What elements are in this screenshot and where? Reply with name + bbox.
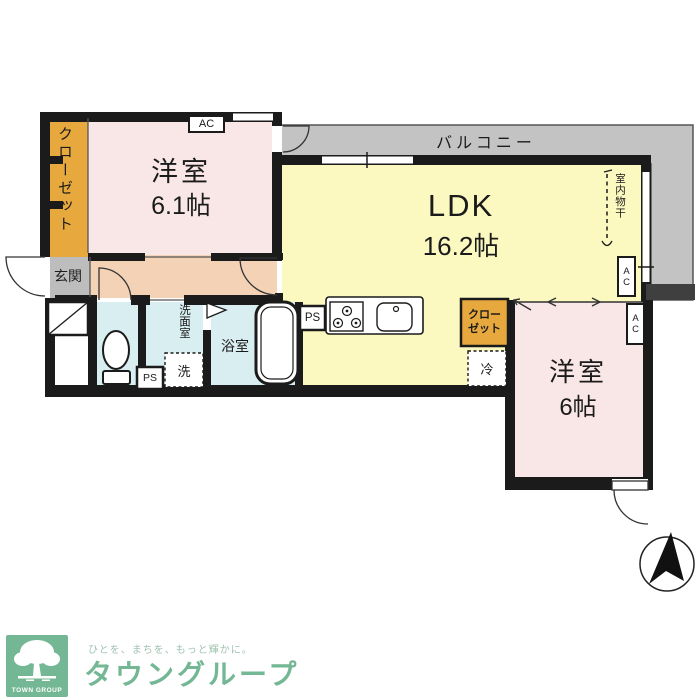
bedroom1-size: 6.1帖 — [100, 186, 262, 222]
washer-label: 洗 — [165, 353, 203, 387]
closet-bedroom2-label: クロー ゼット — [461, 299, 508, 346]
ac-label-bedroom1: AC — [189, 116, 224, 132]
ac-label-bedroom2: AC — [627, 304, 644, 344]
entrance-label: 玄関 — [46, 266, 90, 286]
town-group-logo: TOWN GROUP — [6, 635, 68, 697]
bedroom1-name: 洋室 — [100, 150, 262, 189]
ac-label-ldk: AC — [618, 257, 635, 296]
toilet-icon — [103, 331, 130, 384]
ldk-name: LDK — [380, 188, 542, 224]
balcony-side-area — [651, 125, 693, 300]
compass-north-icon — [640, 532, 694, 591]
bathtub-icon — [256, 302, 298, 384]
kitchen-counter — [326, 297, 423, 334]
hallway-area — [90, 255, 277, 298]
entrance-door-arc — [6, 257, 45, 296]
entrance-step — [48, 302, 88, 335]
balcony-label: バルコニー — [406, 129, 566, 153]
bedroom2-door-leaf — [612, 481, 648, 490]
closet-bedroom2-line2: ゼット — [468, 323, 501, 337]
fridge-label: 冷 — [468, 351, 506, 386]
ldk-size: 16.2帖 — [380, 226, 542, 263]
bedroom2-door-arc — [614, 490, 648, 524]
tree-icon — [6, 635, 68, 683]
ps-label-kitchen: PS — [300, 306, 325, 330]
washroom-label: 洗面室 — [176, 304, 192, 360]
bedroom2-name: 洋室 — [515, 352, 641, 389]
closet-main-label: クローゼット — [54, 126, 75, 254]
company-name: タウングループ — [84, 653, 299, 693]
floorplan-drawing — [0, 0, 700, 700]
floorplan-canvas: クローゼット 洋室 6.1帖 AC バルコニー LDK 16.2帖 室内物干 A… — [0, 0, 700, 700]
logo-caption: TOWN GROUP — [6, 687, 68, 694]
closet-bedroom2-line1: クロー — [468, 309, 501, 323]
bathroom-label: 浴室 — [211, 336, 259, 356]
bedroom2-size: 6帖 — [515, 387, 641, 422]
ps-label-toilet: PS — [137, 367, 163, 389]
indoor-drying-label: 室内物干 — [613, 173, 628, 245]
